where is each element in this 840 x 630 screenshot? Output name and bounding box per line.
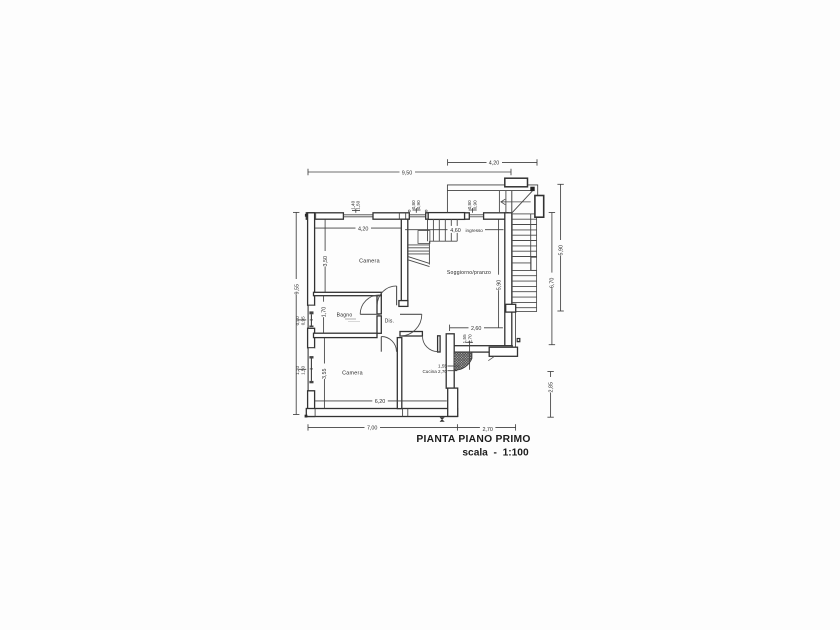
svg-text:3,55: 3,55 bbox=[322, 369, 328, 380]
svg-text:1,40: 1,40 bbox=[350, 200, 355, 209]
svg-text:4,20: 4,20 bbox=[358, 226, 369, 232]
svg-text:2,60: 2,60 bbox=[471, 326, 482, 332]
svg-text:PIANTA PIANO PRIMO: PIANTA PIANO PRIMO bbox=[416, 434, 530, 445]
svg-text:ingresso: ingresso bbox=[466, 228, 484, 233]
svg-text:0,80: 0,80 bbox=[467, 200, 472, 209]
svg-text:1,50: 1,50 bbox=[301, 366, 306, 375]
svg-text:1,20: 1,20 bbox=[295, 366, 300, 375]
svg-text:Bagno: Bagno bbox=[337, 312, 353, 318]
svg-text:Cucina 2,70: Cucina 2,70 bbox=[422, 369, 447, 374]
svg-text:Camera: Camera bbox=[342, 371, 363, 377]
svg-text:2,85: 2,85 bbox=[548, 382, 554, 393]
svg-text:Soggiorno/pranzo: Soggiorno/pranzo bbox=[447, 270, 491, 276]
svg-text:5,90: 5,90 bbox=[496, 280, 502, 291]
svg-text:1,50: 1,50 bbox=[356, 200, 361, 209]
svg-text:0,95: 0,95 bbox=[301, 316, 306, 325]
svg-text:6,20: 6,20 bbox=[375, 399, 386, 405]
svg-text:0,80: 0,80 bbox=[411, 200, 416, 209]
svg-text:scala - 1:100: scala - 1:100 bbox=[462, 447, 529, 458]
svg-text:6,70: 6,70 bbox=[550, 278, 556, 289]
svg-text:5,90: 5,90 bbox=[558, 245, 564, 256]
svg-text:4,20: 4,20 bbox=[489, 161, 500, 167]
svg-text:1,55: 1,55 bbox=[438, 363, 447, 368]
svg-text:0,80: 0,80 bbox=[295, 316, 300, 325]
svg-text:9,55: 9,55 bbox=[294, 284, 300, 295]
svg-text:2,70: 2,70 bbox=[482, 427, 493, 433]
svg-text:0,90: 0,90 bbox=[416, 200, 421, 209]
svg-text:Dis.: Dis. bbox=[385, 318, 395, 324]
svg-text:4,60: 4,60 bbox=[450, 228, 461, 234]
svg-text:0,90: 0,90 bbox=[472, 200, 477, 209]
svg-text:3,50: 3,50 bbox=[323, 256, 329, 267]
svg-text:9,50: 9,50 bbox=[402, 170, 413, 176]
svg-text:7,00: 7,00 bbox=[367, 426, 378, 432]
svg-text:Camera: Camera bbox=[359, 259, 380, 265]
svg-text:1,70: 1,70 bbox=[321, 307, 327, 318]
